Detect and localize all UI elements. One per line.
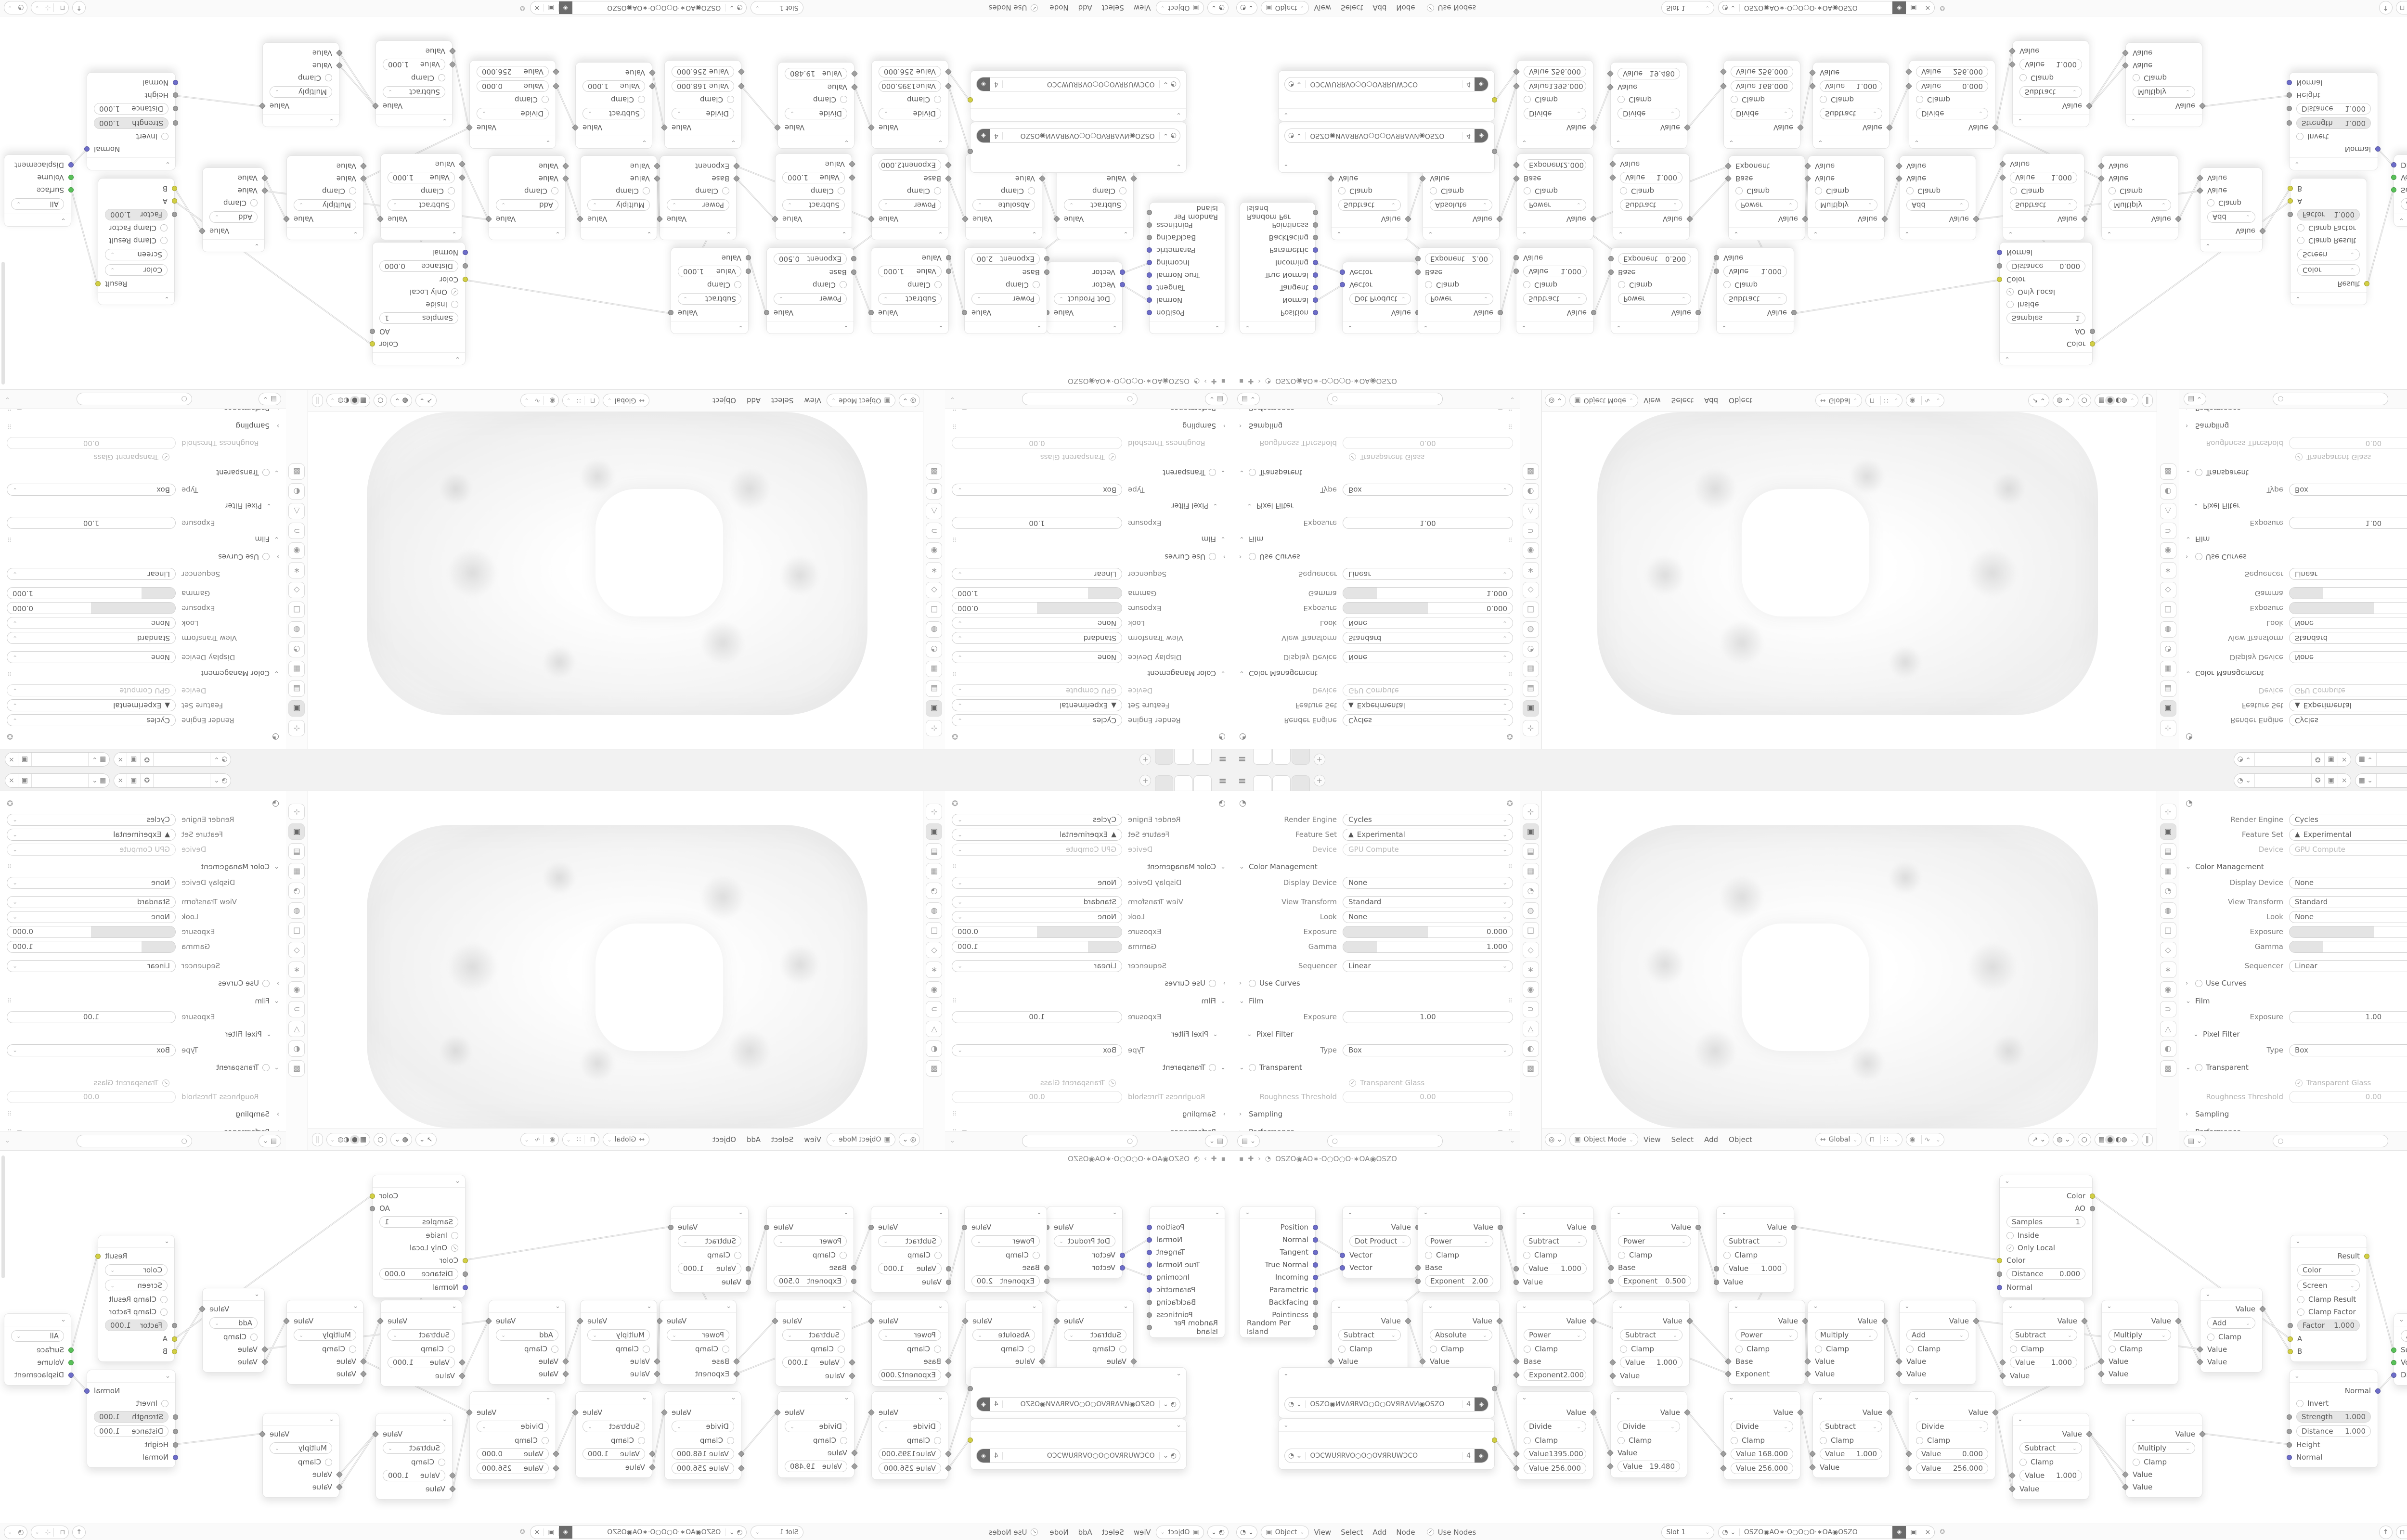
checkbox-icon[interactable] — [934, 188, 941, 195]
menu-add[interactable]: Add — [1372, 1528, 1386, 1537]
node-header[interactable]: ⌄ — [966, 227, 1042, 240]
node-math-multiply-b6[interactable]: ⌄ValueMultiply⌄ClampValueValue — [1808, 1300, 1885, 1385]
operation-dropdown[interactable]: Absolute⌄ — [1430, 199, 1492, 211]
node-header[interactable]: ⌄ — [671, 1206, 748, 1219]
operation-dropdown[interactable]: Subtract⌄ — [678, 293, 741, 305]
input-socket[interactable] — [1514, 269, 1519, 274]
checkbox-icon[interactable] — [2133, 75, 2140, 82]
property-field-display-device[interactable]: None⌄ — [952, 877, 1122, 889]
checkbox-icon[interactable] — [1820, 96, 1827, 103]
value-field[interactable]: Value256.000 — [1916, 66, 1988, 77]
node-header[interactable]: ⌄ — [4, 214, 71, 226]
input-socket[interactable] — [2288, 1349, 2293, 1354]
operation-dropdown[interactable]: Subtract⌄ — [388, 199, 455, 211]
checkbox-icon[interactable] — [1618, 282, 1625, 289]
output-socket[interactable] — [1492, 149, 1497, 154]
node-math-subtract-c4[interactable]: ⌄ValueSubtract⌄ClampValue1.000Value — [575, 1391, 652, 1478]
tab-texture[interactable]: ▩ — [2160, 463, 2176, 480]
operation-dropdown[interactable]: Subtract⌄ — [878, 293, 942, 305]
checkbox-icon[interactable] — [727, 1437, 734, 1444]
node-header[interactable]: ⌄ — [1517, 136, 1593, 148]
property-field-look[interactable]: None⌄ — [1343, 617, 1513, 629]
node-math-subtract-c6[interactable]: ⌄ValueSubtract⌄ClampValue1.000Value — [375, 40, 453, 127]
node-math-divide-c5[interactable]: ⌄ValueDivide⌄ClampValue0.000Value256.000 — [1909, 60, 1995, 149]
section-film[interactable]: ⌄Film⠿ — [952, 532, 1226, 546]
node-vector-math-dot-product[interactable]: ⌄ValueDot Product⌄VectorVector — [1047, 262, 1123, 334]
node-math-divide-c3[interactable]: ⌄ValueDivide⌄ClampValue168.000Value256.0… — [1723, 60, 1800, 149]
value-field[interactable]: Value168.000 — [672, 1448, 734, 1460]
tab-scene[interactable]: ◔ — [2160, 641, 2176, 657]
checkbox-icon[interactable] — [250, 1334, 258, 1341]
input-socket[interactable] — [2287, 120, 2292, 126]
node-header[interactable]: ⌄ — [971, 108, 1186, 121]
tab-material[interactable]: ◐ — [926, 483, 943, 500]
node-header[interactable]: ⌄ — [470, 1392, 556, 1404]
node-header[interactable]: ⌄ — [971, 1419, 1186, 1432]
input-socket[interactable] — [1415, 269, 1421, 275]
property-field-roughness-threshold[interactable]: 0.00 — [7, 1091, 176, 1103]
value-field[interactable]: Value1.000 — [1620, 172, 1682, 183]
node-header[interactable]: ⌄ — [98, 292, 174, 305]
checkbox-icon[interactable] — [160, 237, 168, 244]
checkbox-icon[interactable] — [1425, 282, 1432, 289]
tab-render[interactable]: ▣ — [926, 823, 943, 840]
output-socket[interactable] — [1313, 1312, 1318, 1318]
value-field[interactable]: Distance1.000 — [94, 103, 168, 115]
node-math-subtract-1[interactable]: ⌄ValueSubtract⌄ClampValue1.000Value — [1516, 247, 1594, 334]
pin-icon[interactable]: ✪ — [520, 1528, 525, 1536]
pin-icon[interactable]: ✪ — [7, 732, 13, 742]
node-math-power-2[interactable]: ⌄ValuePower⌄ClampBaseExponent0.500 — [766, 247, 854, 334]
input-socket[interactable] — [172, 1349, 177, 1354]
menu-object[interactable]: Object — [1729, 396, 1752, 405]
value-field[interactable]: Distance1.000 — [94, 1425, 168, 1437]
property-field-roughness-threshold[interactable]: 0.00 — [1343, 437, 1513, 449]
checkbox-icon[interactable] — [840, 96, 847, 103]
node-math-subtract-c6[interactable]: ⌄ValueSubtract⌄ClampValue1.000Value — [375, 1413, 453, 1500]
snap-controls[interactable]: ⊓⊹⌄ — [31, 1, 69, 15]
output-socket[interactable] — [868, 1225, 874, 1230]
checkbox-icon[interactable] — [2006, 1232, 2014, 1239]
section-pixel-filter[interactable]: ⌄Pixel Filter — [952, 1027, 1218, 1041]
tab-object[interactable]: □ — [926, 922, 943, 938]
tab-render[interactable]: ▣ — [2160, 700, 2176, 717]
output-socket[interactable] — [1313, 297, 1318, 303]
output-socket[interactable] — [1313, 1275, 1318, 1280]
toggle-circle[interactable] — [262, 469, 270, 476]
node-header[interactable]: ⌄ — [1150, 321, 1225, 334]
menu-add[interactable]: Add — [1704, 1135, 1718, 1144]
output-socket[interactable] — [668, 310, 673, 315]
node-math-add-b10[interactable]: ⌄ValueAdd⌄ClampValueValue — [2200, 167, 2263, 252]
menu-select[interactable]: Select — [1671, 1135, 1694, 1144]
menu-view[interactable]: View — [804, 396, 821, 405]
input-socket[interactable] — [2287, 106, 2292, 111]
tab-view-layer[interactable]: ▦ — [926, 863, 943, 879]
input-socket[interactable] — [173, 1442, 178, 1448]
output-socket[interactable] — [1147, 1262, 1152, 1268]
scene-name-field[interactable] — [2255, 774, 2312, 787]
property-field-exposure[interactable]: 1.00 — [7, 1011, 176, 1023]
tab-particles[interactable]: ∗ — [2160, 562, 2176, 578]
property-field-look[interactable]: None⌄ — [952, 911, 1122, 923]
node-bump[interactable]: ⌄NormalInvertStrength1.000Distance1.000H… — [2289, 1370, 2378, 1468]
operation-dropdown[interactable]: Subtract⌄ — [388, 1329, 455, 1341]
shading-wireframe-icon[interactable]: ▦ — [360, 1136, 366, 1143]
node-math-subtract-1[interactable]: ⌄ValueSubtract⌄ClampValue1.000Value — [871, 247, 949, 334]
input-socket[interactable] — [851, 269, 856, 275]
section-film[interactable]: ⌄Film⠿ — [2186, 994, 2407, 1008]
output-socket[interactable] — [1147, 272, 1152, 278]
tab-object[interactable]: □ — [1523, 602, 1539, 618]
value-field[interactable]: Value1.000 — [782, 1357, 845, 1368]
operation-dropdown[interactable]: Power⌄ — [1425, 1235, 1493, 1247]
editor-type-button[interactable]: ▤ ⌄ — [259, 393, 281, 406]
toggle-section-use-curves[interactable]: ›Use Curves — [1239, 550, 1513, 564]
output-socket[interactable] — [1147, 210, 1152, 215]
value-field[interactable]: Value256.000 — [879, 1463, 941, 1474]
node-header[interactable]: ⌄ — [1240, 1206, 1315, 1219]
operation-dropdown[interactable]: Multiply⌄ — [1815, 1329, 1877, 1341]
property-field-feature-set[interactable]: ▲Experimental⌄ — [2289, 700, 2407, 712]
tab-scene[interactable]: ◔ — [926, 641, 943, 657]
checkbox-icon[interactable] — [1723, 1252, 1731, 1259]
tab-modifiers[interactable]: ◇ — [2160, 582, 2176, 598]
input-socket[interactable] — [463, 277, 468, 282]
section-pixel-filter[interactable]: ⌄Pixel Filter — [952, 499, 1218, 513]
checkbox-icon[interactable] — [451, 1232, 458, 1239]
operation-dropdown[interactable]: All⌄ — [2401, 198, 2407, 210]
shading-rendered-icon[interactable]: ◍ — [2122, 1136, 2127, 1143]
input-socket[interactable] — [173, 1429, 178, 1434]
nodegroup-id-selector[interactable]: ◔ ⌄OSZO◉ИVΔЯRVO○O○OVЯRΔVИ◉OSZO4◈ — [976, 1397, 1180, 1412]
toggle-circle[interactable] — [1249, 469, 1256, 476]
camera-view-button[interactable]: ‖ — [2142, 394, 2153, 407]
node-header[interactable]: ⌄ — [1057, 1300, 1133, 1313]
node-material-output[interactable]: ⌄All⌄SurfaceVolumeDisplacement — [4, 154, 71, 227]
node-header[interactable]: ⌄ — [1611, 136, 1687, 148]
node-header[interactable]: ⌄ — [1240, 321, 1315, 334]
gizmo-button[interactable]: ↗ ⌄ — [2028, 394, 2049, 407]
parent-tree-button[interactable]: ↑ — [72, 1526, 86, 1539]
output-socket[interactable] — [968, 1386, 973, 1391]
checkbox-icon[interactable] — [1430, 188, 1437, 195]
node-math-power-b3[interactable]: ⌄ValuePower⌄ClampBaseExponent2.000 — [871, 154, 948, 240]
editor-type-button[interactable]: ◔ ⌄ — [1207, 1, 1229, 15]
checkbox-icon[interactable] — [934, 1346, 941, 1353]
operation-dropdown[interactable]: Power⌄ — [879, 199, 941, 211]
tab-view-layer[interactable]: ▦ — [2160, 863, 2176, 879]
property-field-look[interactable]: None⌄ — [1343, 911, 1513, 923]
checkbox-icon[interactable] — [2109, 188, 2116, 195]
tab-view-layer[interactable]: ▦ — [1523, 863, 1539, 879]
node-math-multiply-b6[interactable]: ⌄ValueMultiply⌄ClampValueValue — [580, 1300, 657, 1385]
node-vector-math-dot-product[interactable]: ⌄ValueDot Product⌄VectorVector — [1047, 1206, 1123, 1278]
section-sampling[interactable]: ›Sampling⠿ — [952, 1107, 1226, 1121]
value-field[interactable]: Strength1.000 — [94, 1411, 168, 1423]
output-socket[interactable] — [1147, 247, 1152, 253]
node-geometry[interactable]: ⌄PositionNormalTangentTrue NormalIncomin… — [1149, 202, 1225, 334]
tab-constraints[interactable]: ⊃ — [289, 523, 305, 539]
operation-dropdown[interactable]: Divide⌄ — [1731, 108, 1793, 119]
property-field-display-device[interactable]: None⌄ — [1343, 877, 1513, 889]
value-field[interactable]: Exponent0.500 — [1618, 253, 1691, 265]
shading-material-icon[interactable]: ◐ — [343, 1136, 349, 1143]
toggle-section-transparent[interactable]: ⌄Transparent — [1239, 466, 1513, 479]
property-field-render-engine[interactable]: Cycles⌄ — [7, 814, 176, 826]
input-socket[interactable] — [1415, 256, 1421, 261]
operation-dropdown[interactable]: Divide⌄ — [1731, 1421, 1793, 1432]
node-math-add-b7[interactable]: ⌄ValueAdd⌄ClampValueValue — [489, 1300, 566, 1385]
node-header[interactable]: ⌄ — [87, 157, 175, 170]
material-slot-dropdown[interactable]: Slot 1⌄ — [1661, 1526, 1714, 1539]
checkbox-icon[interactable] — [1815, 188, 1822, 195]
scrollbar[interactable] — [1, 262, 5, 385]
input-socket[interactable] — [1997, 1285, 2002, 1290]
node-header[interactable]: ⌄ — [776, 1300, 852, 1313]
tab-physics[interactable]: ◉ — [1523, 542, 1539, 559]
output-socket[interactable] — [1313, 222, 1318, 228]
property-field-gamma[interactable]: 1.000 — [1343, 588, 1513, 600]
node-vector-math-dot-product[interactable]: ⌄ValueDot Product⌄VectorVector — [1342, 1206, 1418, 1278]
shading-rendered-icon[interactable]: ◍ — [2122, 397, 2127, 404]
proportional-edit-controls[interactable]: ◉∿⌄ — [520, 394, 559, 407]
property-field-sequencer[interactable]: Linear⌄ — [952, 960, 1122, 972]
close-icon[interactable]: × — [2338, 774, 2351, 787]
input-socket[interactable] — [463, 250, 468, 255]
shading-material-icon[interactable]: ◐ — [2115, 397, 2121, 404]
value-field[interactable]: Distance1.000 — [2296, 103, 2371, 115]
toggle-section-transparent[interactable]: ⌄Transparent — [7, 466, 279, 479]
operation-dropdown[interactable]: Multiply⌄ — [294, 199, 356, 211]
input-socket[interactable] — [1714, 1280, 1719, 1285]
input-socket[interactable] — [2287, 1414, 2292, 1420]
app-menu-icon[interactable]: ≡ — [1218, 754, 1227, 766]
node-header[interactable]: ⌄ — [1808, 1300, 1884, 1313]
value-field[interactable]: Exponent2.000 — [1524, 1369, 1586, 1381]
tab-particles[interactable]: ∗ — [1523, 962, 1539, 978]
node-math-subtract-b4[interactable]: ⌄ValueSubtract⌄ClampValue1.000Value — [775, 1300, 852, 1386]
toggle-section-use-curves[interactable]: ›Use Curves — [7, 550, 279, 564]
property-field-feature-set[interactable]: ▲Experimental⌄ — [952, 700, 1122, 712]
input-socket[interactable] — [173, 1455, 178, 1460]
input-socket[interactable] — [746, 269, 751, 274]
checkbox-icon[interactable] — [934, 96, 941, 103]
value-field[interactable]: Distance1.000 — [2296, 1425, 2371, 1437]
property-field-gamma[interactable]: 1.000 — [2289, 588, 2407, 600]
tab-tool[interactable]: ⊹ — [926, 720, 943, 736]
checkbox-icon[interactable] — [1033, 282, 1040, 289]
operation-dropdown[interactable]: Power⌄ — [1618, 293, 1691, 305]
operation-dropdown[interactable]: Power⌄ — [1735, 199, 1798, 211]
input-socket[interactable] — [68, 175, 74, 180]
node-header[interactable]: ⌄ — [2000, 352, 2092, 365]
section-sampling[interactable]: ›Sampling⠿ — [7, 419, 279, 433]
property-field-sequencer[interactable]: Linear⌄ — [1343, 568, 1513, 580]
tab-object[interactable]: □ — [926, 602, 943, 618]
nodegroup-id-selector[interactable]: ◔ ⌄OSZO◉ИVΔЯRVO○O○OVЯRΔVИ◉OSZO4◈ — [1284, 128, 1488, 143]
value-field[interactable]: Exponent2.00 — [1425, 1275, 1493, 1287]
output-socket[interactable] — [1313, 1300, 1318, 1305]
node-math-power-1[interactable]: ⌄ValuePower⌄ClampBaseExponent2.00 — [964, 247, 1047, 334]
fake-user-shield-icon[interactable]: ◈ — [977, 77, 990, 91]
tab-texture[interactable]: ▩ — [289, 1060, 305, 1077]
operation-dropdown[interactable]: Multiply⌄ — [587, 1329, 650, 1341]
node-node-group-1[interactable]: ⌄◔ ⌄OSZO◉ИVΔЯRVO○O○OVЯRΔVИ◉OSZO4◈ — [970, 122, 1187, 173]
value-field[interactable]: Value168.000 — [1731, 1448, 1793, 1460]
snap-controls[interactable]: ⊓∷⌄ — [1865, 394, 1902, 407]
shading-material-icon[interactable]: ◐ — [2115, 1136, 2121, 1143]
operation-dropdown[interactable]: Screen⌄ — [2297, 249, 2360, 260]
operation-dropdown[interactable]: Divide⌄ — [477, 108, 549, 119]
property-field-render-engine[interactable]: Cycles⌄ — [7, 715, 176, 727]
checkbox-icon[interactable] — [160, 1309, 168, 1316]
pin-icon[interactable]: ✪ — [1507, 732, 1513, 742]
input-socket[interactable] — [1514, 1280, 1519, 1285]
tab-modifiers[interactable]: ◇ — [289, 942, 305, 958]
property-field-type[interactable]: Box⌄ — [952, 1044, 1122, 1056]
input-socket[interactable] — [2287, 1442, 2292, 1448]
checkbox-icon[interactable] — [1735, 188, 1743, 195]
node-header[interactable]: ⌄ — [1611, 1392, 1687, 1404]
input-socket[interactable] — [1997, 1271, 2002, 1277]
checkbox-icon[interactable] — [638, 96, 645, 103]
checkbox-icon[interactable] — [448, 1346, 455, 1353]
operation-dropdown[interactable]: Divide⌄ — [879, 1421, 941, 1432]
orientation-dropdown[interactable]: ↔Global⌄ — [603, 1133, 650, 1146]
checkbox-icon[interactable] — [1524, 1437, 1531, 1444]
checkbox-icon[interactable] — [934, 1437, 941, 1444]
section-color-management[interactable]: ⌄Color Management⠿ — [952, 860, 1226, 873]
operation-dropdown[interactable]: Divide⌄ — [1618, 108, 1680, 119]
operation-dropdown[interactable]: Multiply⌄ — [2133, 86, 2195, 98]
operation-dropdown[interactable]: Add⌄ — [209, 1317, 258, 1329]
operation-dropdown[interactable]: All⌄ — [2401, 1330, 2407, 1342]
node-bump[interactable]: ⌄NormalInvertStrength1.000Distance1.000H… — [87, 72, 176, 170]
output-socket[interactable] — [1313, 1325, 1318, 1330]
workspace-tab[interactable] — [1155, 775, 1173, 791]
tab-tool[interactable]: ⊹ — [1523, 720, 1539, 736]
copy-icon[interactable]: ▣ — [544, 4, 558, 12]
tab-world[interactable]: ◍ — [926, 902, 943, 919]
value-field[interactable]: Value168.000 — [672, 80, 734, 92]
node-header[interactable]: ⌄ — [965, 321, 1047, 334]
value-field[interactable]: Samples1 — [379, 1216, 458, 1228]
value-field[interactable]: Samples1 — [379, 312, 458, 324]
output-socket[interactable] — [2364, 1254, 2369, 1259]
camera-view-button[interactable]: ‖ — [312, 394, 323, 407]
value-field[interactable]: Strength1.000 — [94, 117, 168, 129]
shading-wireframe-icon[interactable]: ▦ — [2098, 1136, 2105, 1143]
toggle-section-transparent[interactable]: ⌄Transparent — [2186, 1061, 2407, 1074]
section-film[interactable]: ⌄Film⠿ — [2186, 532, 2407, 546]
add-workspace-button[interactable]: + — [1314, 775, 1325, 786]
tab-scene[interactable]: ◔ — [1523, 883, 1539, 899]
value-field[interactable]: Factor1.000 — [105, 209, 168, 220]
unlink-icon[interactable]: × — [531, 4, 544, 12]
operation-dropdown[interactable]: Subtract⌄ — [1523, 1235, 1587, 1247]
value-field[interactable]: Value1395.000 — [879, 1448, 941, 1460]
input-socket[interactable] — [2287, 80, 2292, 85]
mode-dropdown[interactable]: ▣Object Mode⌄ — [827, 394, 895, 407]
node-math-subtract-c6[interactable]: ⌄ValueSubtract⌄ClampValue1.000Value — [2012, 40, 2089, 127]
operation-dropdown[interactable]: Dot Product⌄ — [1054, 293, 1115, 305]
proportional-edit-controls[interactable]: ◉∿⌄ — [520, 1133, 559, 1146]
menu-select[interactable]: Select — [1341, 4, 1363, 13]
node-header[interactable]: ⌄ — [1150, 1206, 1225, 1219]
section-color-management[interactable]: ⌄Color Management⠿ — [1239, 667, 1513, 680]
operation-dropdown[interactable]: Subtract⌄ — [1338, 199, 1401, 211]
toggle-section-use-curves[interactable]: ›Use Curves — [2186, 550, 2407, 564]
menu-view[interactable]: View — [1134, 4, 1151, 13]
node-ambient-occlusion[interactable]: ⌄ColorAOSamples1Inside✓Only LocalColorDi… — [1999, 242, 2093, 365]
input-socket[interactable] — [2287, 92, 2292, 98]
checkbox-icon[interactable] — [1916, 96, 1923, 103]
property-field-sequencer[interactable]: Linear⌄ — [7, 960, 176, 972]
property-field-gamma[interactable]: 1.000 — [1343, 941, 1513, 953]
input-socket[interactable] — [1608, 256, 1614, 261]
nodegroup-id-selector[interactable]: ◔ ⌄OSZO◉ИVΔЯRVO○O○OVЯRΔVИ◉OSZO4◈ — [976, 128, 1180, 143]
property-field-look[interactable]: None⌄ — [7, 617, 176, 629]
node-math-subtract-2[interactable]: ⌄ValueSubtract⌄ClampValue1.000Value — [671, 247, 749, 334]
editor-type-button[interactable]: ◎ ⌄ — [1545, 1133, 1566, 1146]
tab-output[interactable]: ▤ — [2160, 843, 2176, 860]
tab-modifiers[interactable]: ◇ — [1523, 582, 1539, 598]
output-socket[interactable] — [1695, 1225, 1701, 1230]
operation-dropdown[interactable]: Absolute⌄ — [972, 199, 1035, 211]
node-header[interactable]: ⌄ — [965, 1206, 1047, 1219]
property-field-gamma[interactable]: 1.000 — [2289, 941, 2407, 953]
tab-view-layer[interactable]: ▦ — [289, 863, 305, 879]
copy-icon[interactable]: ▣ — [544, 1528, 558, 1536]
output-socket[interactable] — [2090, 1193, 2095, 1199]
tab-constraints[interactable]: ⊃ — [289, 1001, 305, 1017]
close-icon[interactable]: × — [114, 774, 127, 787]
checkbox-icon[interactable] — [734, 282, 741, 289]
output-socket[interactable] — [1498, 310, 1503, 315]
checkbox-transparent-glass[interactable]: ✓Transparent Glass — [1349, 1077, 1513, 1089]
property-field-gamma[interactable]: 1.000 — [952, 941, 1122, 953]
tab-material[interactable]: ◐ — [289, 1040, 305, 1057]
checkbox-icon[interactable] — [1119, 1346, 1126, 1353]
output-socket[interactable] — [1695, 310, 1701, 315]
operation-dropdown[interactable]: Subtract⌄ — [383, 1442, 445, 1454]
input-socket[interactable] — [68, 1347, 74, 1353]
operation-dropdown[interactable]: Multiply⌄ — [587, 199, 650, 211]
input-socket[interactable] — [173, 80, 178, 85]
node-math-subtract-b4[interactable]: ⌄ValueSubtract⌄ClampValue1.000Value — [775, 154, 852, 240]
input-socket[interactable] — [463, 263, 468, 269]
input-socket[interactable] — [1340, 1253, 1345, 1258]
search-input[interactable]: ○ — [1327, 1135, 1443, 1147]
node-header[interactable]: ⌄ — [1279, 1419, 1494, 1432]
operation-dropdown[interactable]: Power⌄ — [667, 199, 729, 211]
node-node-group-1[interactable]: ⌄◔ ⌄OSZO◉ИVΔЯRVO○O○OVЯRΔVИ◉OSZO4◈ — [1278, 1367, 1495, 1418]
input-socket[interactable] — [1120, 282, 1125, 287]
property-field-sequencer[interactable]: Linear⌄ — [2289, 568, 2407, 580]
pin-icon[interactable]: ✪ — [1940, 4, 1945, 12]
output-socket[interactable] — [2090, 341, 2095, 346]
node-node-group-1[interactable]: ⌄◔ ⌄OSZO◉ИVΔЯRVO○O○OVЯRΔVИ◉OSZO4◈ — [1278, 122, 1495, 173]
input-socket[interactable] — [2288, 1323, 2293, 1328]
tab-texture[interactable]: ▩ — [926, 1060, 943, 1077]
operation-dropdown[interactable]: Multiply⌄ — [294, 1329, 356, 1341]
property-field-exposure[interactable]: 1.00 — [952, 517, 1122, 529]
output-socket[interactable] — [1147, 310, 1152, 315]
viewlayer-selector[interactable]: ▦ ⌄▣× — [5, 753, 110, 767]
editor-type-button[interactable]: ▤ ⌄ — [2184, 393, 2206, 406]
scene-name-field[interactable] — [153, 774, 210, 787]
